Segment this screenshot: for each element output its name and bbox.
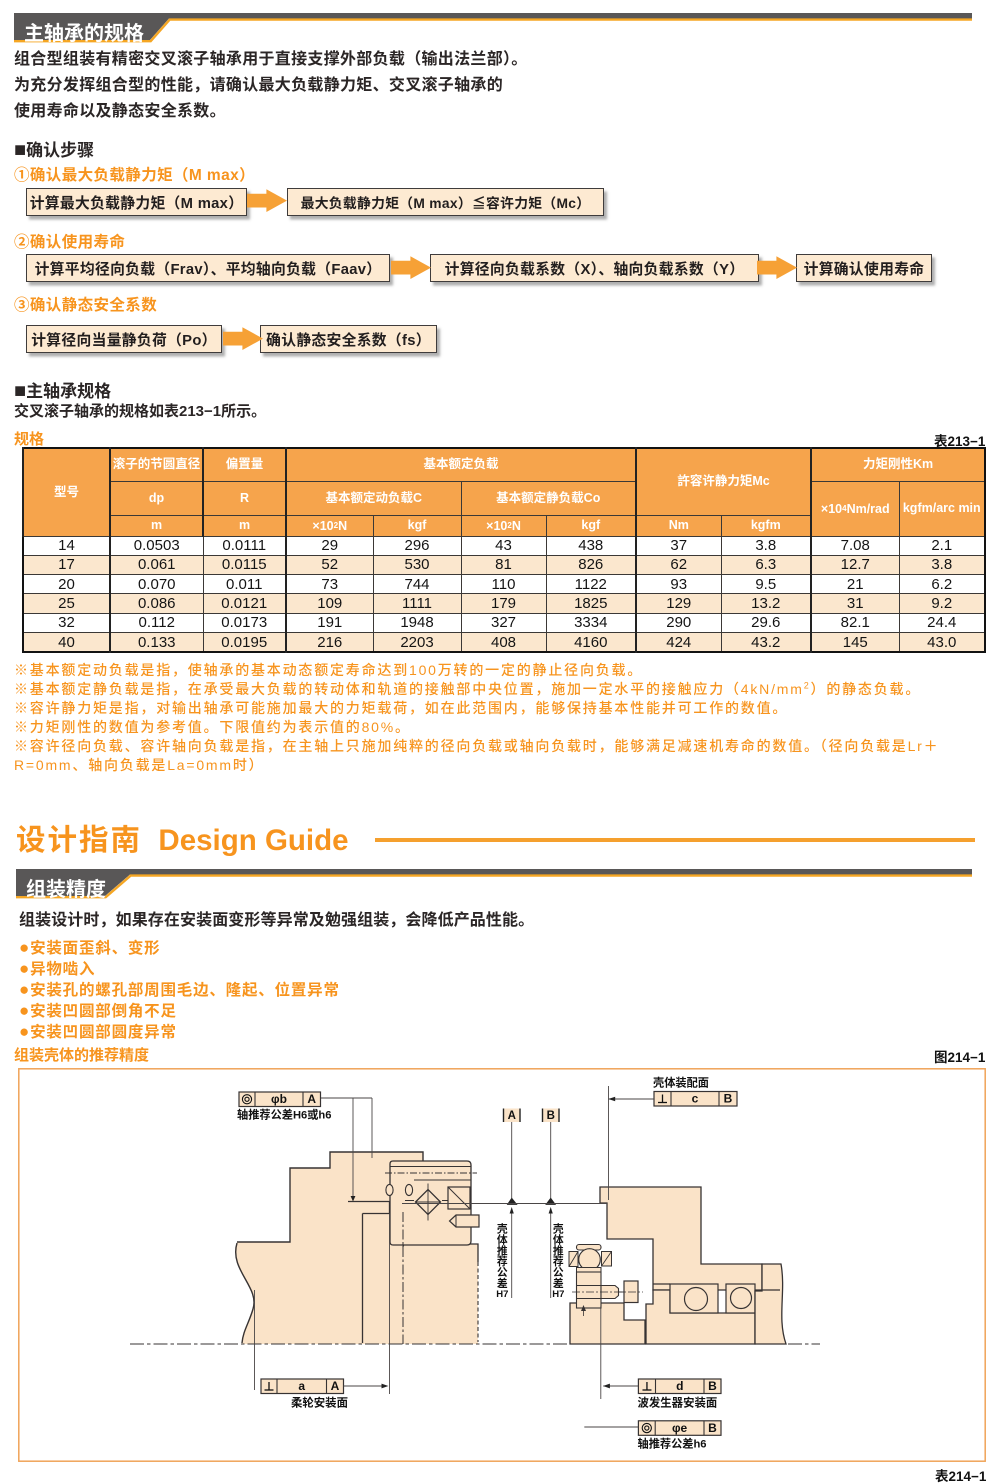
- svg-text:荐: 荐: [497, 1254, 508, 1268]
- svg-text:轴推荐公差H6或h6: 轴推荐公差H6或h6: [237, 1108, 331, 1122]
- svg-text:柔轮安装面: 柔轮安装面: [291, 1396, 348, 1410]
- svg-text:φe: φe: [672, 1421, 688, 1435]
- svg-text:壳体装配面: 壳体装配面: [653, 1076, 709, 1090]
- svg-text:B: B: [547, 1110, 555, 1122]
- svg-text:差: 差: [497, 1276, 508, 1290]
- svg-text:荐: 荐: [553, 1254, 564, 1268]
- svg-text:B: B: [708, 1421, 717, 1435]
- svg-text:体: 体: [497, 1232, 508, 1246]
- svg-text:H7: H7: [496, 1289, 508, 1300]
- svg-text:壳: 壳: [553, 1222, 564, 1236]
- svg-text:B: B: [724, 1092, 733, 1106]
- svg-text:波发生器安装面: 波发生器安装面: [638, 1396, 718, 1410]
- svg-text:A: A: [307, 1092, 316, 1106]
- svg-text:a: a: [298, 1379, 305, 1393]
- svg-text:差: 差: [553, 1276, 564, 1290]
- svg-text:d: d: [676, 1379, 683, 1393]
- svg-text:c: c: [692, 1092, 699, 1106]
- svg-text:A: A: [331, 1379, 340, 1393]
- svg-text:壳: 壳: [497, 1222, 508, 1236]
- svg-text:推: 推: [497, 1243, 508, 1257]
- svg-text:轴推荐公差h6: 轴推荐公差h6: [638, 1437, 707, 1451]
- svg-text:B: B: [708, 1379, 717, 1393]
- svg-text:推: 推: [553, 1243, 564, 1257]
- svg-text:A: A: [508, 1110, 516, 1122]
- svg-text:φb: φb: [271, 1092, 287, 1106]
- svg-text:体: 体: [553, 1232, 564, 1246]
- svg-text:H7: H7: [552, 1289, 564, 1300]
